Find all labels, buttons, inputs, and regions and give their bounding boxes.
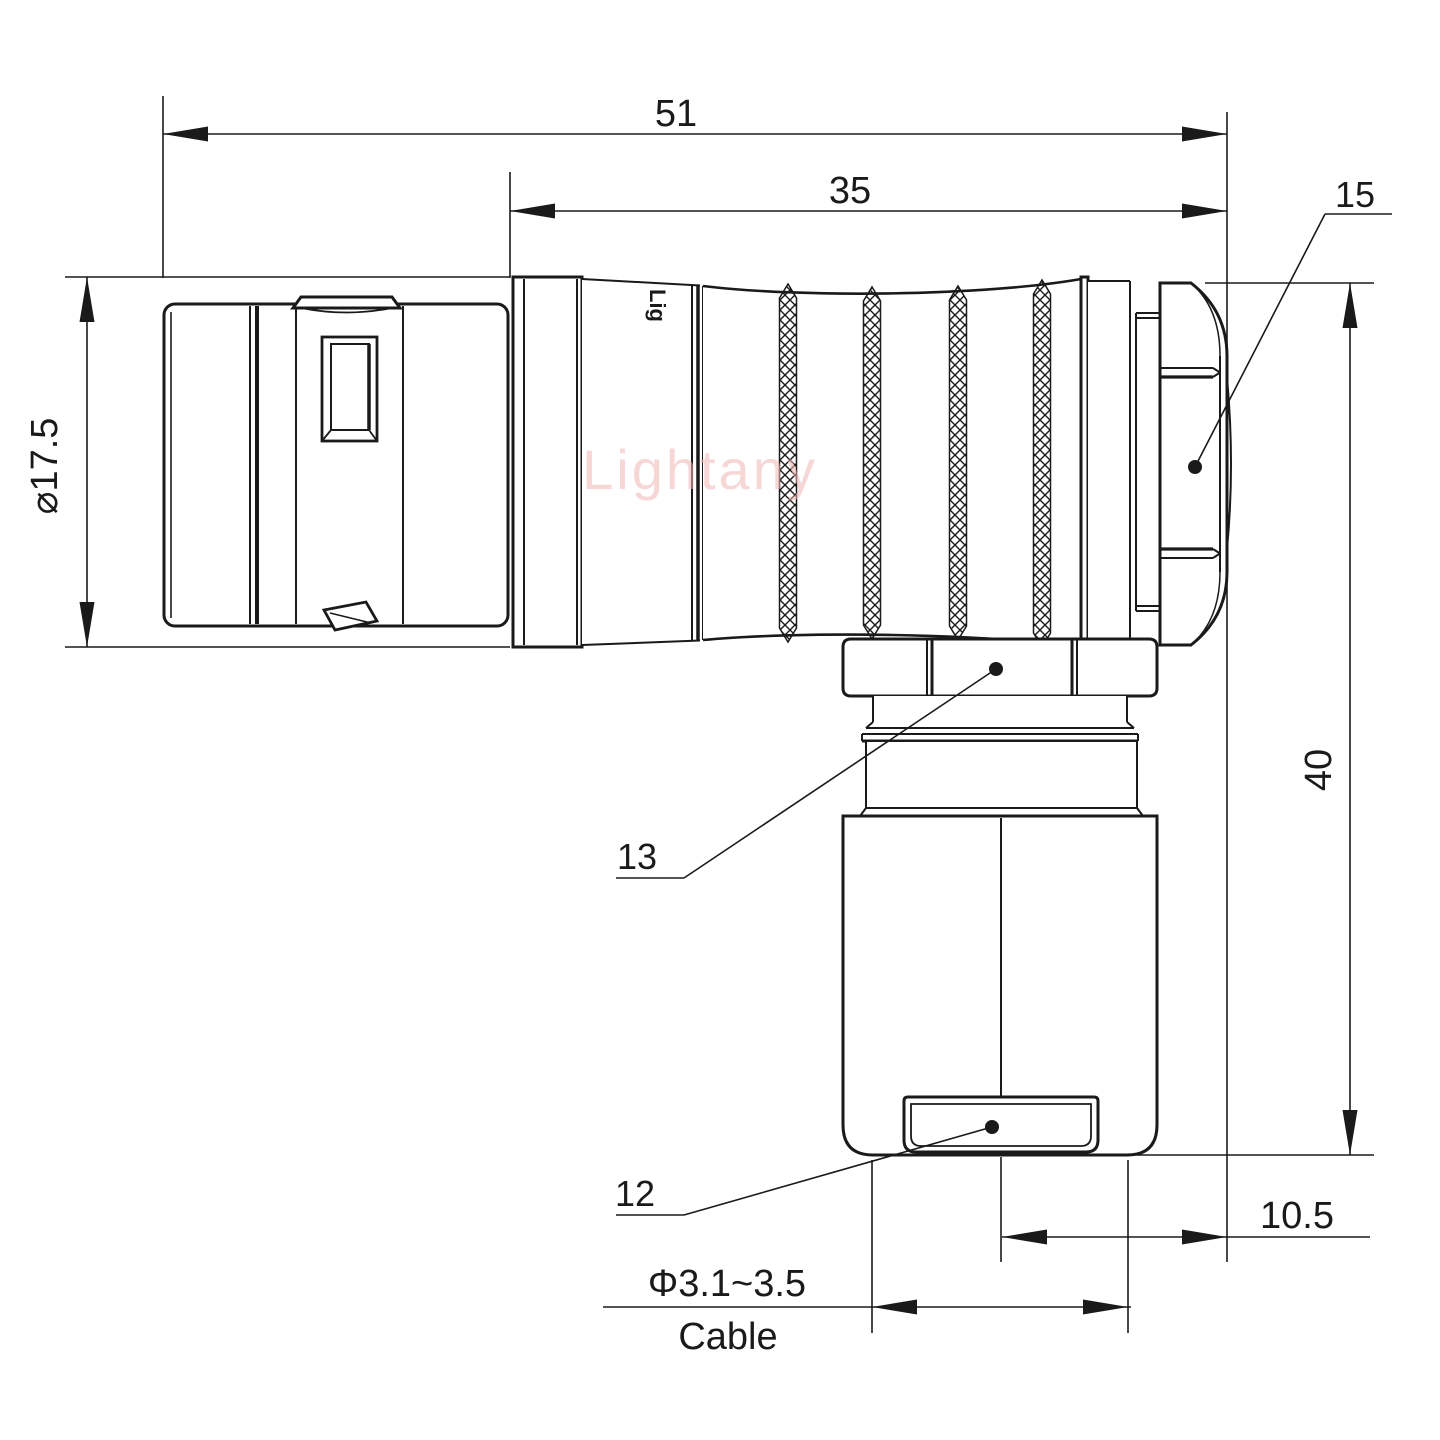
body-marking: Lig xyxy=(645,289,670,322)
dim-label-rear-length: 35 xyxy=(829,170,871,212)
front-sleeve xyxy=(164,297,508,630)
dimension-rear-length: 35 xyxy=(510,170,1227,278)
strain-relief-flange xyxy=(862,696,1138,741)
knurl-band xyxy=(950,286,967,640)
dim-label-front-diameter: ⌀17.5 xyxy=(24,418,66,515)
callout-dot xyxy=(985,1120,999,1134)
connector-technical-drawing: 51 35 ⌀17.5 40 10.5 xyxy=(0,0,1440,1440)
dim-label-height: 40 xyxy=(1298,749,1340,791)
dim-label-overall-length: 51 xyxy=(655,93,697,135)
clamp-barrel xyxy=(860,741,1143,816)
watermark: Lightany xyxy=(582,438,818,501)
dim-label-offset: 10.5 xyxy=(1260,1195,1334,1237)
mid-ring xyxy=(513,277,582,647)
keyway-tab xyxy=(293,297,400,308)
dim-label-cable-range: Φ3.1~3.5 xyxy=(648,1263,806,1305)
dimension-offset: 10.5 xyxy=(1001,1157,1370,1262)
vertical-view xyxy=(843,639,1157,1155)
callout-label-12: 12 xyxy=(615,1173,655,1214)
callout-dot xyxy=(1188,460,1202,474)
rear-collar xyxy=(1081,277,1160,649)
callout-label-13: 13 xyxy=(617,836,657,877)
bayonet-window xyxy=(322,337,377,441)
callout-label-15: 15 xyxy=(1335,174,1375,215)
dimension-cable: Φ3.1~3.5 Cable xyxy=(603,1160,1131,1358)
callout-dot xyxy=(989,662,1003,676)
drawing-canvas: 51 35 ⌀17.5 40 10.5 xyxy=(0,0,1440,1440)
knurl-band xyxy=(864,287,881,639)
knurl-band xyxy=(1034,280,1051,647)
dim-label-cable-word: Cable xyxy=(678,1316,777,1358)
